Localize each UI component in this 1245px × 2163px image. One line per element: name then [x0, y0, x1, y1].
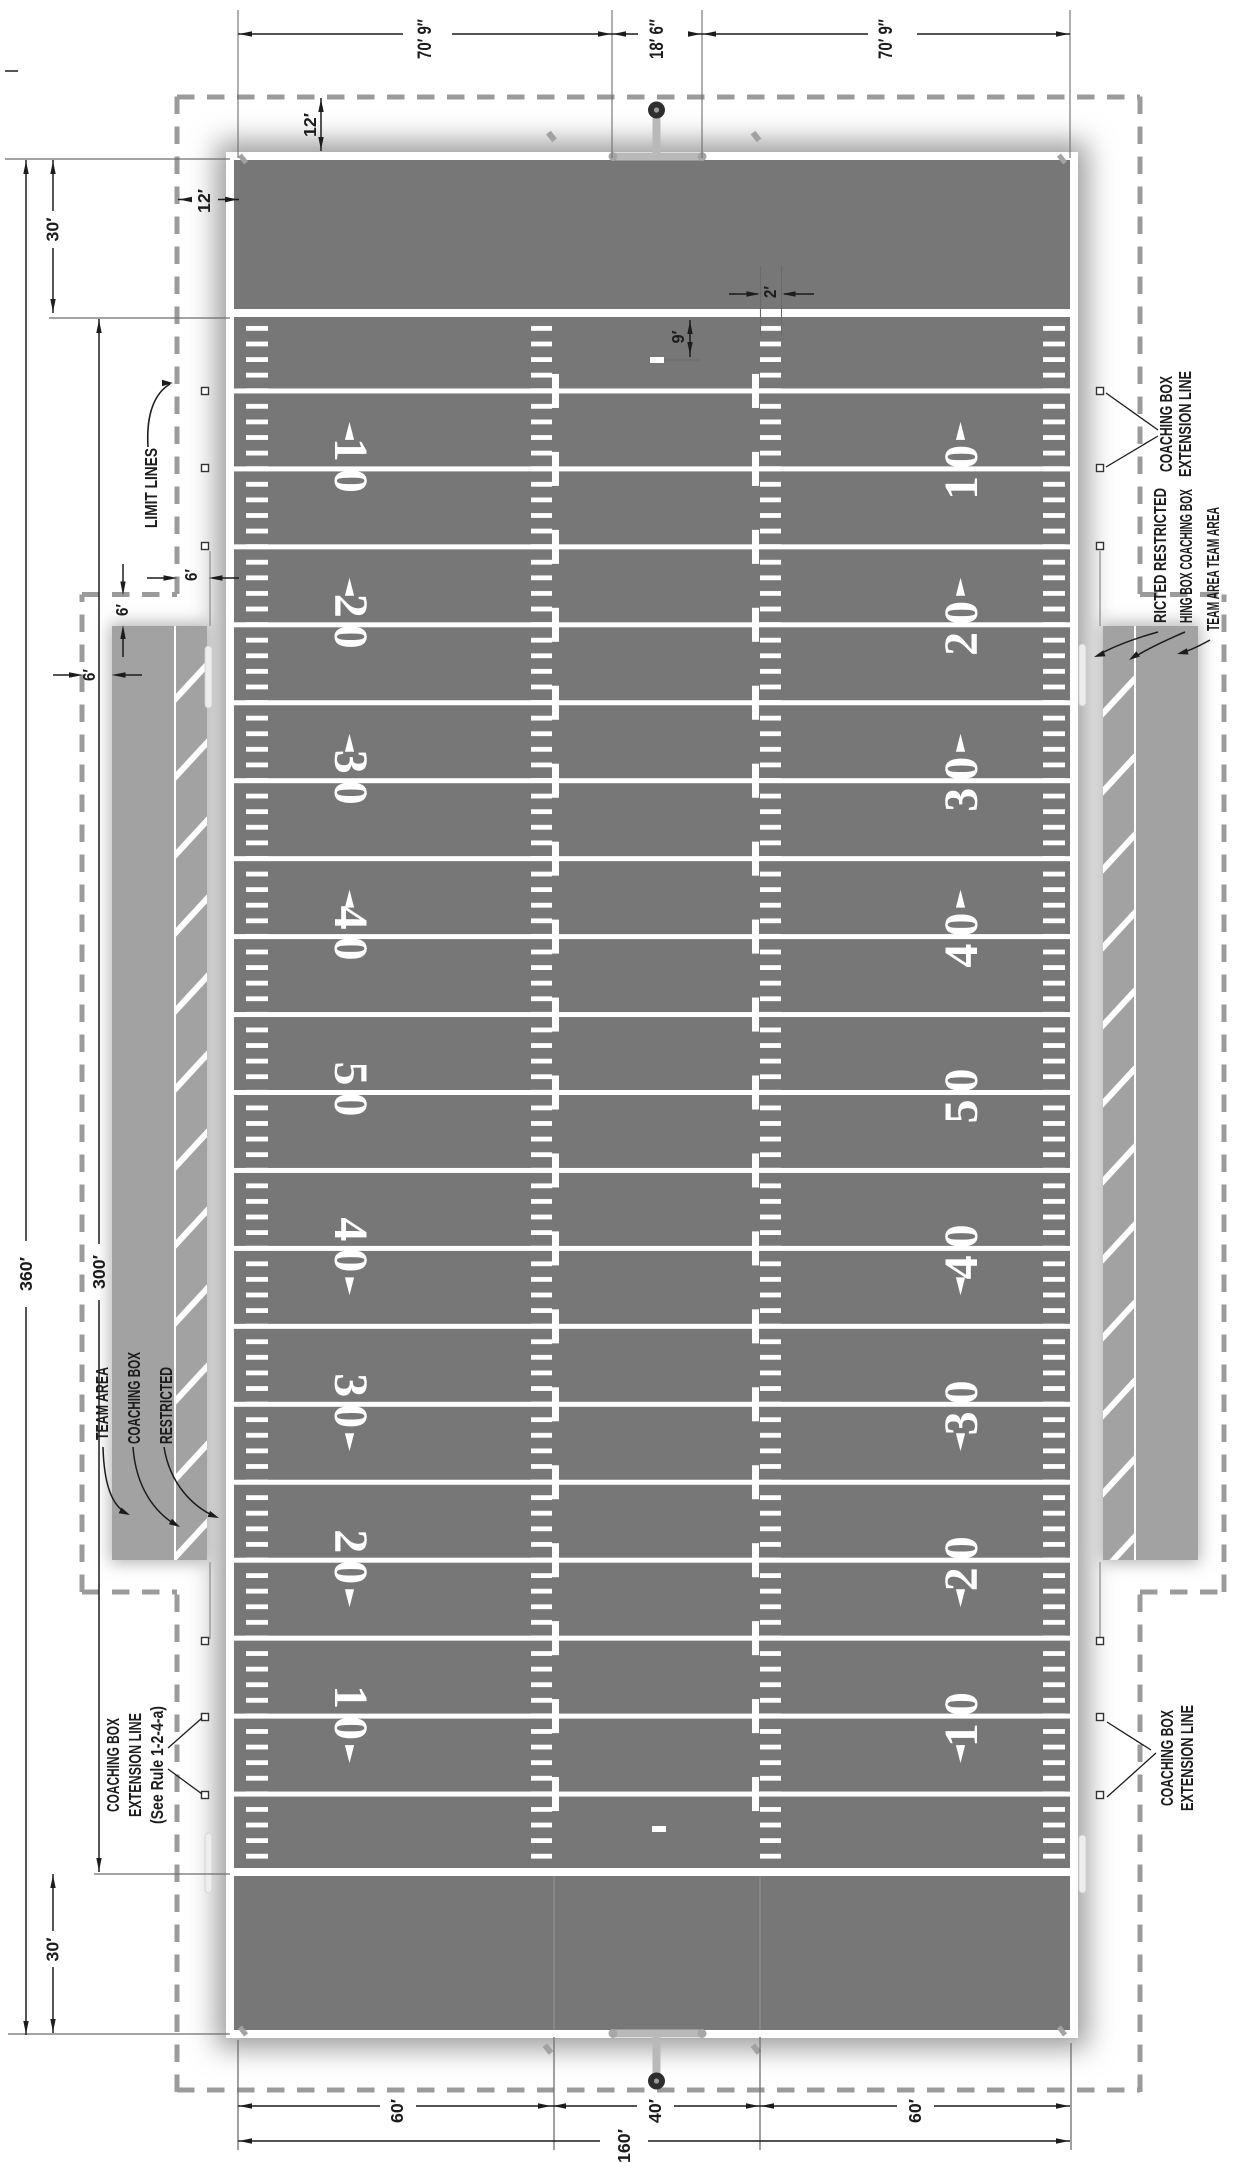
svg-text:10: 10: [324, 1685, 377, 1747]
svg-text:10: 10: [935, 1685, 988, 1747]
svg-text:40′: 40′: [645, 2099, 665, 2123]
svg-text:10: 10: [935, 438, 988, 500]
svg-text:160′: 160′: [614, 2129, 634, 2163]
svg-text:70′ 9″: 70′ 9″: [875, 19, 897, 59]
svg-text:10: 10: [324, 438, 377, 500]
svg-text:6′: 6′: [112, 604, 132, 616]
svg-text:EXTENSION LINE: EXTENSION LINE: [125, 1713, 145, 1817]
svg-text:12′: 12′: [300, 113, 320, 137]
svg-text:COACHING BOX: COACHING BOX: [124, 1352, 144, 1444]
svg-text:6′: 6′: [79, 669, 99, 681]
svg-text:HING BOX COACHING BOX: HING BOX COACHING BOX: [1176, 489, 1196, 623]
svg-text:9′: 9′: [668, 331, 688, 344]
svg-text:60′: 60′: [387, 2099, 407, 2123]
svg-text:LIMIT LINES: LIMIT LINES: [141, 448, 161, 528]
svg-text:60′: 60′: [905, 2099, 925, 2123]
svg-text:30: 30: [935, 750, 988, 812]
svg-text:50: 50: [935, 1062, 988, 1124]
svg-text:RESTRICTED: RESTRICTED: [156, 1367, 176, 1444]
svg-text:30′: 30′: [43, 218, 63, 242]
svg-text:20: 20: [324, 1529, 377, 1591]
svg-text:40: 40: [935, 1217, 988, 1279]
svg-text:30: 30: [324, 750, 377, 812]
svg-text:EXTENSION LINE: EXTENSION LINE: [1177, 1705, 1197, 1811]
svg-text:TEAM AREA: TEAM AREA: [92, 1367, 112, 1440]
svg-text:20: 20: [324, 594, 377, 656]
svg-text:2′: 2′: [760, 286, 780, 298]
svg-text:TEAM AREA TEAM AREA: TEAM AREA TEAM AREA: [1203, 507, 1223, 631]
svg-text:COACHING BOX: COACHING BOX: [1156, 376, 1176, 472]
svg-text:40: 40: [935, 906, 988, 968]
svg-text:30: 30: [935, 1373, 988, 1435]
svg-text:30′: 30′: [43, 1938, 63, 1962]
svg-text:COACHING BOX: COACHING BOX: [103, 1718, 123, 1812]
svg-text:300′: 300′: [89, 1255, 109, 1289]
svg-text:20: 20: [935, 594, 988, 656]
svg-text:70′ 9″: 70′ 9″: [414, 19, 436, 59]
svg-text:18′ 6″: 18′ 6″: [646, 19, 668, 59]
svg-text:12′: 12′: [194, 189, 214, 213]
svg-text:6′: 6′: [181, 569, 201, 581]
svg-text:50: 50: [324, 1062, 377, 1124]
svg-text:COACHING BOX: COACHING BOX: [1157, 1710, 1177, 1806]
svg-text:(See Rule 1-2-4-a): (See Rule 1-2-4-a): [147, 1706, 167, 1824]
svg-text:20: 20: [935, 1529, 988, 1591]
svg-text:EXTENSION LINE: EXTENSION LINE: [1175, 371, 1195, 477]
svg-text:360′: 360′: [16, 1257, 36, 1291]
svg-text:40: 40: [324, 906, 377, 968]
svg-text:40: 40: [324, 1217, 377, 1279]
svg-text:RICTED RESTRICTED: RICTED RESTRICTED: [1150, 488, 1170, 623]
svg-text:30: 30: [324, 1373, 377, 1435]
